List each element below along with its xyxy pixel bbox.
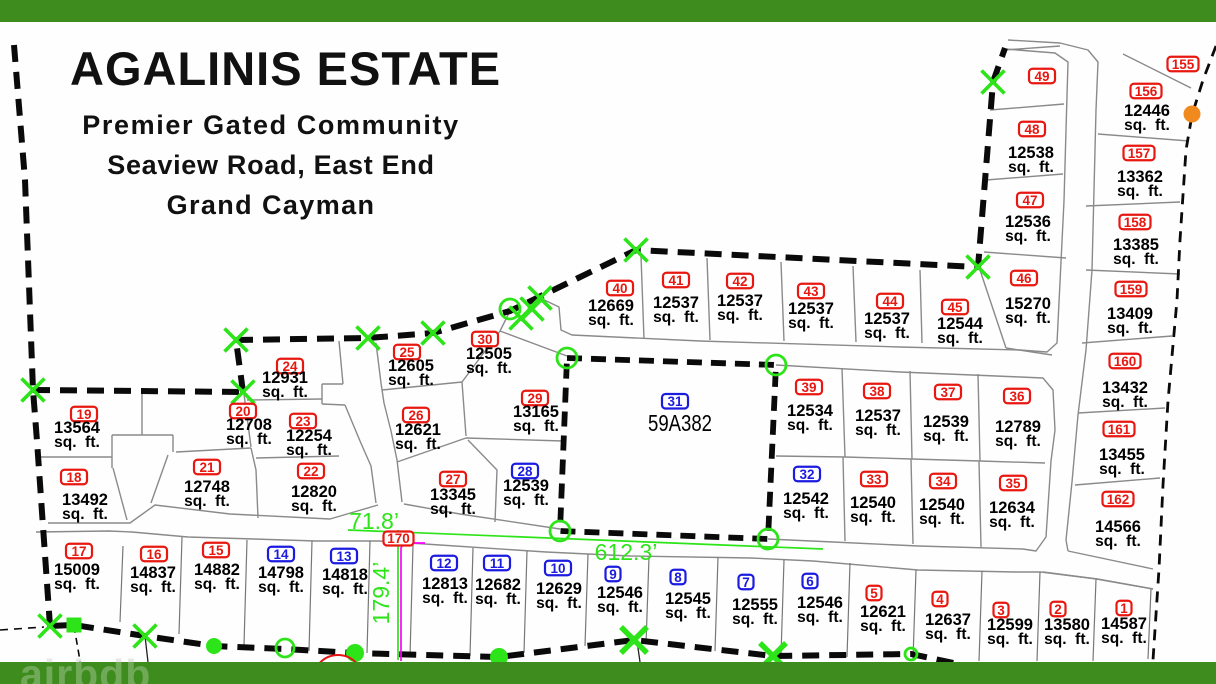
svg-text:sq. ft.: sq. ft. [783,505,829,522]
svg-text:11: 11 [490,556,505,571]
svg-text:sq. ft.: sq. ft. [322,581,368,598]
svg-text:sq. ft.: sq. ft. [787,417,833,434]
svg-text:sq. ft.: sq. ft. [1005,228,1051,245]
svg-text:sq. ft.: sq. ft. [1102,394,1148,411]
svg-text:16: 16 [146,547,162,562]
svg-text:59A382: 59A382 [648,410,712,436]
svg-text:sq. ft.: sq. ft. [937,330,983,347]
svg-text:12: 12 [436,556,451,571]
svg-text:sq. ft.: sq. ft. [54,576,100,593]
svg-text:49: 49 [1034,69,1049,84]
svg-text:158: 158 [1124,215,1147,230]
svg-text:sq. ft.: sq. ft. [1044,631,1090,648]
svg-text:10: 10 [550,561,565,576]
svg-text:AGALINIS ESTATE: AGALINIS ESTATE [70,42,501,95]
svg-text:179.4’: 179.4’ [368,562,394,625]
svg-text:sq. ft.: sq. ft. [536,595,582,612]
svg-text:161: 161 [1108,422,1131,437]
svg-text:27: 27 [445,472,460,487]
svg-text:15: 15 [208,543,224,558]
svg-text:sq. ft.: sq. ft. [422,590,468,607]
svg-text:22: 22 [303,464,318,479]
svg-text:47: 47 [1022,193,1037,208]
svg-text:sq. ft.: sq. ft. [388,372,434,389]
svg-text:45: 45 [947,300,963,315]
svg-text:sq. ft.: sq. ft. [919,511,965,528]
svg-text:sq. ft.: sq. ft. [850,509,896,526]
svg-text:sq. ft.: sq. ft. [925,626,971,643]
svg-text:35: 35 [1005,476,1021,491]
svg-text:sq. ft.: sq. ft. [864,325,910,342]
svg-text:sq. ft.: sq. ft. [503,492,549,509]
svg-text:37: 37 [940,385,955,400]
svg-text:4: 4 [936,592,944,607]
svg-text:42: 42 [732,274,747,289]
svg-text:38: 38 [869,384,885,399]
svg-text:36: 36 [1009,389,1025,404]
svg-text:sq. ft.: sq. ft. [54,434,100,451]
svg-text:sq. ft.: sq. ft. [1008,159,1054,176]
svg-text:sq. ft.: sq. ft. [130,579,176,596]
svg-text:sq. ft.: sq. ft. [475,591,521,608]
svg-text:sq. ft.: sq. ft. [588,312,634,329]
svg-text:17: 17 [71,544,86,559]
svg-text:48: 48 [1024,122,1040,137]
svg-text:sq. ft.: sq. ft. [62,506,108,523]
svg-text:18: 18 [66,470,82,485]
svg-text:sq. ft.: sq. ft. [788,315,834,332]
svg-text:13: 13 [336,549,352,564]
svg-text:sq. ft.: sq. ft. [262,384,308,401]
svg-text:159: 159 [1120,282,1143,297]
svg-text:sq. ft.: sq. ft. [395,436,441,453]
svg-text:32: 32 [799,467,814,482]
svg-text:sq. ft.: sq. ft. [923,428,969,445]
svg-text:sq. ft.: sq. ft. [989,514,1035,531]
svg-text:sq. ft.: sq. ft. [987,631,1033,648]
svg-text:2: 2 [1054,602,1062,617]
svg-text:14: 14 [273,547,289,562]
svg-text:162: 162 [1107,492,1130,507]
svg-text:sq. ft.: sq. ft. [797,609,843,626]
svg-text:sq. ft.: sq. ft. [1095,533,1141,550]
svg-text:43: 43 [803,284,819,299]
svg-text:sq. ft.: sq. ft. [226,431,272,448]
svg-text:46: 46 [1016,271,1032,286]
svg-text:sq. ft.: sq. ft. [1107,320,1153,337]
svg-text:sq. ft.: sq. ft. [194,576,240,593]
svg-text:sq. ft.: sq. ft. [184,493,230,510]
svg-text:41: 41 [668,273,684,288]
svg-text:sq. ft.: sq. ft. [1124,117,1170,134]
svg-text:sq. ft.: sq. ft. [653,309,699,326]
svg-text:Seaview Road, East End: Seaview Road, East End [107,150,435,180]
svg-text:sq. ft.: sq. ft. [855,422,901,439]
svg-text:6: 6 [806,574,814,589]
svg-text:33: 33 [866,472,882,487]
svg-text:sq. ft.: sq. ft. [258,579,304,596]
svg-text:sq. ft.: sq. ft. [995,433,1041,450]
svg-text:sq. ft.: sq. ft. [1117,183,1163,200]
svg-text:7: 7 [742,575,750,590]
svg-text:44: 44 [882,294,898,309]
svg-text:40: 40 [612,281,627,296]
svg-text:156: 156 [1135,84,1158,99]
svg-text:sq. ft.: sq. ft. [1113,251,1159,268]
svg-text:sq. ft.: sq. ft. [1101,630,1147,647]
svg-text:sq. ft.: sq. ft. [597,599,643,616]
svg-text:sq. ft.: sq. ft. [286,442,332,459]
svg-text:sq. ft.: sq. ft. [665,605,711,622]
svg-text:160: 160 [1114,354,1137,369]
svg-text:8: 8 [674,570,682,585]
svg-text:21: 21 [199,460,215,475]
svg-text:Premier Gated Community: Premier Gated Community [82,110,459,140]
svg-text:sq. ft.: sq. ft. [466,360,512,377]
svg-text:sq. ft.: sq. ft. [1099,461,1145,478]
svg-text:sq. ft.: sq. ft. [1005,310,1051,327]
svg-text:34: 34 [935,474,951,489]
svg-text:1: 1 [1120,601,1128,616]
svg-text:Grand Cayman: Grand Cayman [167,190,376,220]
svg-text:sq. ft.: sq. ft. [732,611,778,628]
svg-text:sq. ft.: sq. ft. [860,618,906,635]
svg-text:sq. ft.: sq. ft. [717,307,763,324]
svg-text:170: 170 [387,531,410,546]
svg-text:sq. ft.: sq. ft. [513,418,559,435]
svg-text:31: 31 [667,394,683,409]
svg-text:157: 157 [1128,146,1151,161]
svg-text:155: 155 [1172,57,1195,72]
svg-text:sq. ft.: sq. ft. [291,498,337,515]
svg-text:5: 5 [870,586,878,601]
svg-text:9: 9 [609,567,617,582]
svg-text:612.3’: 612.3’ [595,539,658,565]
svg-text:39: 39 [801,380,816,395]
svg-text:sq. ft.: sq. ft. [430,501,476,518]
